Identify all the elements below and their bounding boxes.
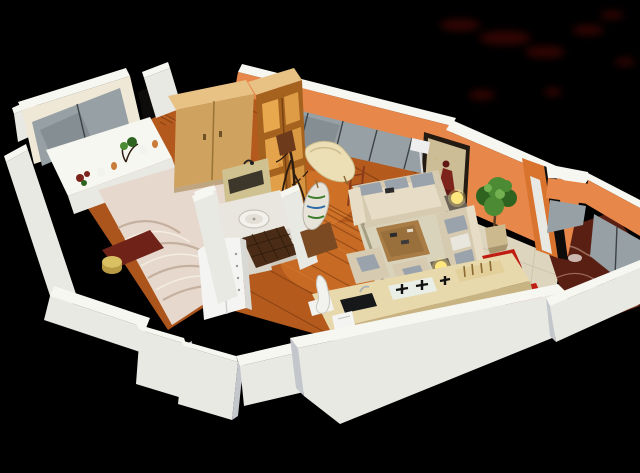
apartment-floorplan-3d xyxy=(0,0,640,473)
yellow-stool xyxy=(102,256,122,274)
apartment-render-stage xyxy=(0,0,640,473)
